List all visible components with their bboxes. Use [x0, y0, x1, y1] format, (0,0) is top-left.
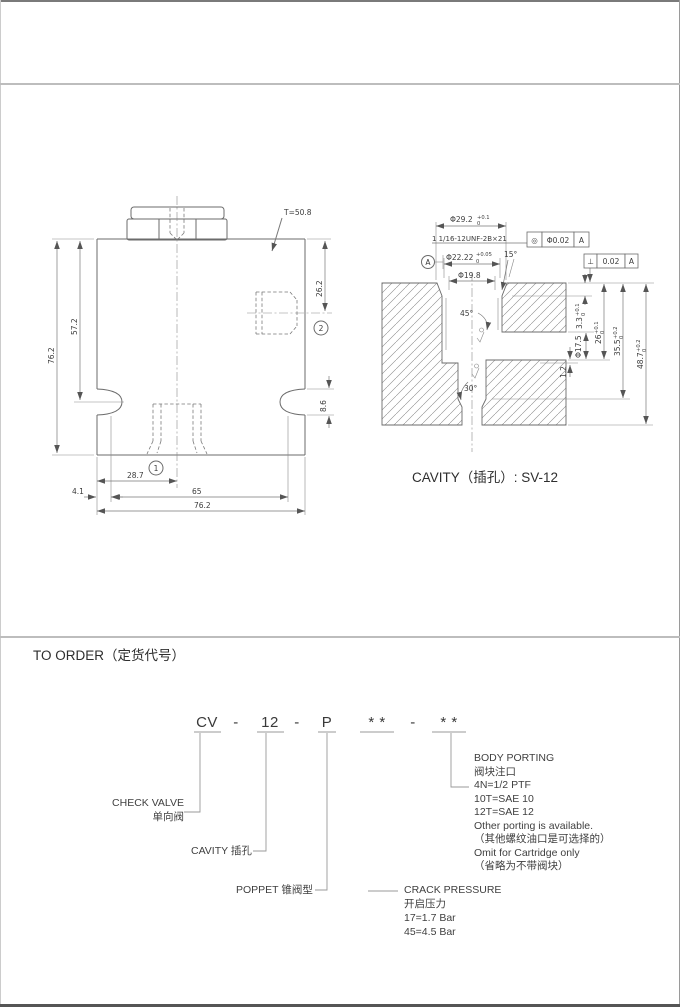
dim-pilot-depth: 35.5 +0.2 0: [613, 284, 625, 398]
svg-text:0: 0: [619, 336, 625, 339]
body-porting-note: （其他螺纹油口是可选择的）: [474, 833, 611, 847]
svg-text:35.5: 35.5: [613, 339, 622, 356]
port1-balloon: 1: [149, 461, 163, 475]
witness-lines-left-view: [52, 239, 334, 515]
svg-text:Φ22.22: Φ22.22: [446, 253, 474, 262]
cavity-callout: CAVITY 插孔: [191, 845, 252, 859]
svg-text:8.6: 8.6: [319, 400, 328, 412]
svg-text:57.2: 57.2: [70, 318, 79, 335]
dim-spotface-dia: Φ29.2 +0.1 0: [436, 215, 506, 227]
body-porting-subtitle: 阀块注口: [474, 766, 611, 780]
svg-text:+0.05: +0.05: [476, 252, 492, 258]
body-porting-callout: BODY PORTING 阀块注口 4N=1/2 PTF 10T=SAE 10 …: [474, 752, 611, 874]
dim-hole-span: 65: [111, 487, 288, 497]
dim-overall-width: 76.2: [97, 501, 305, 511]
dim-hole-height: 8.6: [319, 376, 329, 428]
svg-text:0: 0: [600, 331, 606, 334]
dim-overall-height: 76.2: [47, 241, 57, 453]
cavity-material-hatched: [382, 283, 566, 425]
datasheet-page: 76.2 57.2 26.2 8.6 28.7 4.1: [0, 0, 680, 1007]
crack-pressure-callout: CRACK PRESSURE 开启压力 17=1.7 Bar 45=4.5 Ba…: [404, 883, 501, 939]
svg-text:Φ19.8: Φ19.8: [458, 271, 481, 280]
svg-text:0.02: 0.02: [603, 257, 620, 266]
dim-edge-to-hole: 4.1: [72, 487, 123, 497]
svg-text:0: 0: [477, 221, 480, 227]
code-separator: -: [228, 714, 244, 731]
svg-text:15°: 15°: [504, 250, 518, 259]
svg-text:0: 0: [642, 349, 648, 352]
dim-port-dia: Φ17.5: [574, 333, 586, 359]
svg-text:26: 26: [594, 334, 603, 344]
svg-text:T=50.8: T=50.8: [283, 208, 312, 217]
dim-bottom-angle: 30°: [461, 382, 478, 400]
svg-text:48.7: 48.7: [636, 352, 645, 369]
crack-pressure-subtitle: 开启压力: [404, 897, 501, 911]
code-separator: -: [405, 714, 421, 731]
perpendicularity-icon: ⊥: [587, 257, 594, 266]
mounting-notch-right: [280, 389, 305, 415]
code-crack-pressure-stars: * *: [356, 714, 398, 731]
body-porting-option: 12T=SAE 12: [474, 806, 611, 820]
gdt-concentricity-frame: ◎ Φ0.02 A: [527, 232, 589, 247]
svg-text:30°: 30°: [464, 384, 478, 393]
svg-text:Φ17.5: Φ17.5: [574, 335, 583, 358]
svg-text:45°: 45°: [460, 309, 474, 318]
code-leader-lines: [184, 733, 469, 891]
cavity-title: CAVITY（插孔）: SV-12: [412, 466, 558, 486]
svg-text:65: 65: [192, 487, 202, 496]
dim-top-to-hole: 57.2: [70, 241, 80, 400]
poppet-callout: POPPET 锥阀型: [236, 884, 313, 898]
svg-text:0: 0: [476, 259, 479, 265]
svg-text:1: 1: [154, 464, 159, 473]
body-porting-option: 4N=1/2 PTF: [474, 779, 611, 793]
port2-balloon: 2: [314, 321, 328, 335]
svg-text:0: 0: [581, 313, 587, 316]
code-body-porting-stars: * *: [428, 714, 470, 731]
svg-text:Φ29.2: Φ29.2: [450, 215, 473, 224]
svg-text:A: A: [629, 257, 635, 266]
dim-top-to-port2: 26.2: [315, 241, 325, 311]
body-porting-note: （省略为不带阀块）: [474, 860, 611, 874]
svg-text:2: 2: [319, 324, 324, 333]
body-porting-option: 10T=SAE 10: [474, 793, 611, 807]
datum-a-symbol: A: [422, 255, 444, 269]
dim-port1-offset: 28.7: [97, 471, 177, 481]
code-separator: -: [289, 714, 305, 731]
code-model: CV: [190, 714, 224, 731]
page-border-top: [0, 0, 680, 2]
dim-thread-depth: 26 +0.1 0: [594, 284, 606, 359]
svg-text:A: A: [425, 258, 431, 267]
cavity-section-view: Φ29.2 +0.1 0 1 1/16-12UNF-2B×21 ◎ Φ0.02 …: [382, 215, 654, 452]
check-valve-label-en: CHECK VALVE: [98, 797, 184, 811]
body-porting-note: Other porting is available.: [474, 820, 611, 834]
crack-pressure-option: 17=1.7 Bar: [404, 911, 501, 925]
svg-text:3.3: 3.3: [575, 317, 584, 329]
drawing-area-svg: 76.2 57.2 26.2 8.6 28.7 4.1: [0, 85, 680, 637]
svg-text:Φ0.02: Φ0.02: [547, 236, 570, 245]
svg-text:1 1/16-12UNF-2B×21: 1 1/16-12UNF-2B×21: [432, 235, 507, 243]
dim-full-depth: 48.7 +0.2 0: [636, 284, 648, 424]
torque-note: T=50.8: [272, 208, 312, 251]
svg-text:76.2: 76.2: [47, 347, 56, 364]
crack-pressure-option: 45=4.5 Bar: [404, 925, 501, 939]
body-porting-note: Omit for Cartridge only: [474, 847, 611, 861]
dim-bore-dia: Φ19.8: [449, 271, 495, 281]
thread-callout: 1 1/16-12UNF-2B×21: [432, 235, 527, 243]
svg-text:76.2: 76.2: [194, 501, 211, 510]
svg-text:4.1: 4.1: [72, 487, 84, 496]
crack-pressure-title: CRACK PRESSURE: [404, 883, 501, 897]
code-poppet: P: [315, 714, 339, 731]
dim-seat-angle: 45°: [460, 309, 487, 330]
surface-finish-icon: [477, 328, 484, 342]
check-valve-callout: CHECK VALVE 单向阀: [98, 797, 184, 824]
body-porting-title: BODY PORTING: [474, 752, 611, 766]
dim-pilot-dia: Φ22.22 +0.05 0: [444, 252, 500, 265]
concentricity-icon: ◎: [531, 236, 538, 245]
svg-text:28.7: 28.7: [127, 471, 144, 480]
svg-text:26.2: 26.2: [315, 280, 324, 297]
gdt-perpendicularity-frame: ⊥ 0.02 A: [584, 254, 638, 282]
check-valve-label-zh: 单向阀: [98, 811, 184, 825]
surface-finish-icon: [472, 364, 479, 378]
svg-text:1.2: 1.2: [559, 366, 568, 378]
dim-step-depth: 3.3 +0.1 0: [575, 274, 587, 329]
svg-text:A: A: [579, 236, 585, 245]
valve-outline-view: 76.2 57.2 26.2 8.6 28.7 4.1: [47, 196, 334, 515]
code-cavity: 12: [253, 714, 287, 731]
